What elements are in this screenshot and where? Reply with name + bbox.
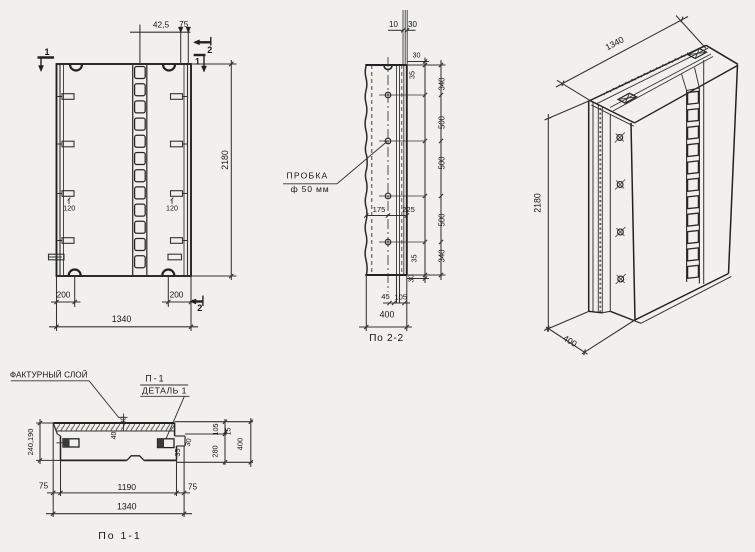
svg-text:1: 1: [195, 57, 200, 67]
svg-text:120: 120: [63, 204, 75, 213]
svg-text:35: 35: [173, 449, 182, 457]
svg-text:35: 35: [408, 71, 417, 79]
svg-text:2180: 2180: [533, 193, 543, 213]
svg-text:ДЕТАЛЬ 1: ДЕТАЛЬ 1: [142, 386, 187, 396]
svg-text:15: 15: [226, 428, 233, 436]
svg-text:500: 500: [438, 115, 447, 129]
svg-text:340: 340: [438, 77, 447, 91]
svg-text:ф 50 мм: ф 50 мм: [291, 184, 330, 194]
svg-text:30: 30: [413, 51, 421, 60]
svg-text:200: 200: [57, 290, 71, 300]
svg-text:По 2-2: По 2-2: [369, 333, 404, 344]
svg-text:35: 35: [410, 255, 419, 263]
svg-text:30: 30: [121, 417, 128, 425]
svg-text:ПРОБКА: ПРОБКА: [287, 171, 329, 181]
svg-text:2: 2: [207, 45, 212, 55]
svg-text:225: 225: [402, 205, 415, 214]
svg-text:30: 30: [183, 437, 194, 447]
svg-text:105: 105: [394, 293, 407, 302]
svg-text:500: 500: [438, 156, 447, 170]
svg-text:75: 75: [179, 19, 189, 29]
svg-text:1340: 1340: [604, 34, 626, 52]
svg-text:400: 400: [236, 438, 245, 451]
svg-text:30: 30: [407, 275, 416, 283]
svg-text:500: 500: [438, 213, 447, 227]
svg-text:1340: 1340: [112, 314, 132, 324]
svg-text:400: 400: [380, 310, 395, 320]
svg-text:75: 75: [39, 481, 49, 491]
svg-text:40: 40: [111, 432, 118, 440]
svg-text:ФАКТУРНЫЙ СЛОЙ: ФАКТУРНЫЙ СЛОЙ: [10, 369, 88, 380]
svg-text:1: 1: [44, 47, 49, 57]
svg-text:200: 200: [170, 290, 184, 300]
svg-text:75: 75: [188, 482, 198, 492]
svg-text:120: 120: [166, 204, 178, 213]
svg-text:2180: 2180: [220, 150, 230, 170]
svg-text:10: 10: [389, 20, 398, 29]
svg-text:П-1: П-1: [145, 374, 165, 384]
svg-text:45: 45: [381, 292, 389, 301]
svg-text:30: 30: [408, 20, 417, 29]
svg-text:280: 280: [211, 445, 220, 457]
svg-text:175: 175: [373, 205, 386, 214]
svg-text:42,5: 42,5: [153, 20, 170, 30]
svg-text:240,190: 240,190: [26, 429, 35, 456]
svg-text:1340: 1340: [117, 502, 137, 512]
svg-text:По 1-1: По 1-1: [98, 530, 141, 542]
svg-text:1190: 1190: [118, 482, 137, 492]
svg-text:2: 2: [197, 303, 202, 313]
svg-text:105: 105: [211, 424, 220, 436]
svg-text:340: 340: [438, 249, 447, 263]
